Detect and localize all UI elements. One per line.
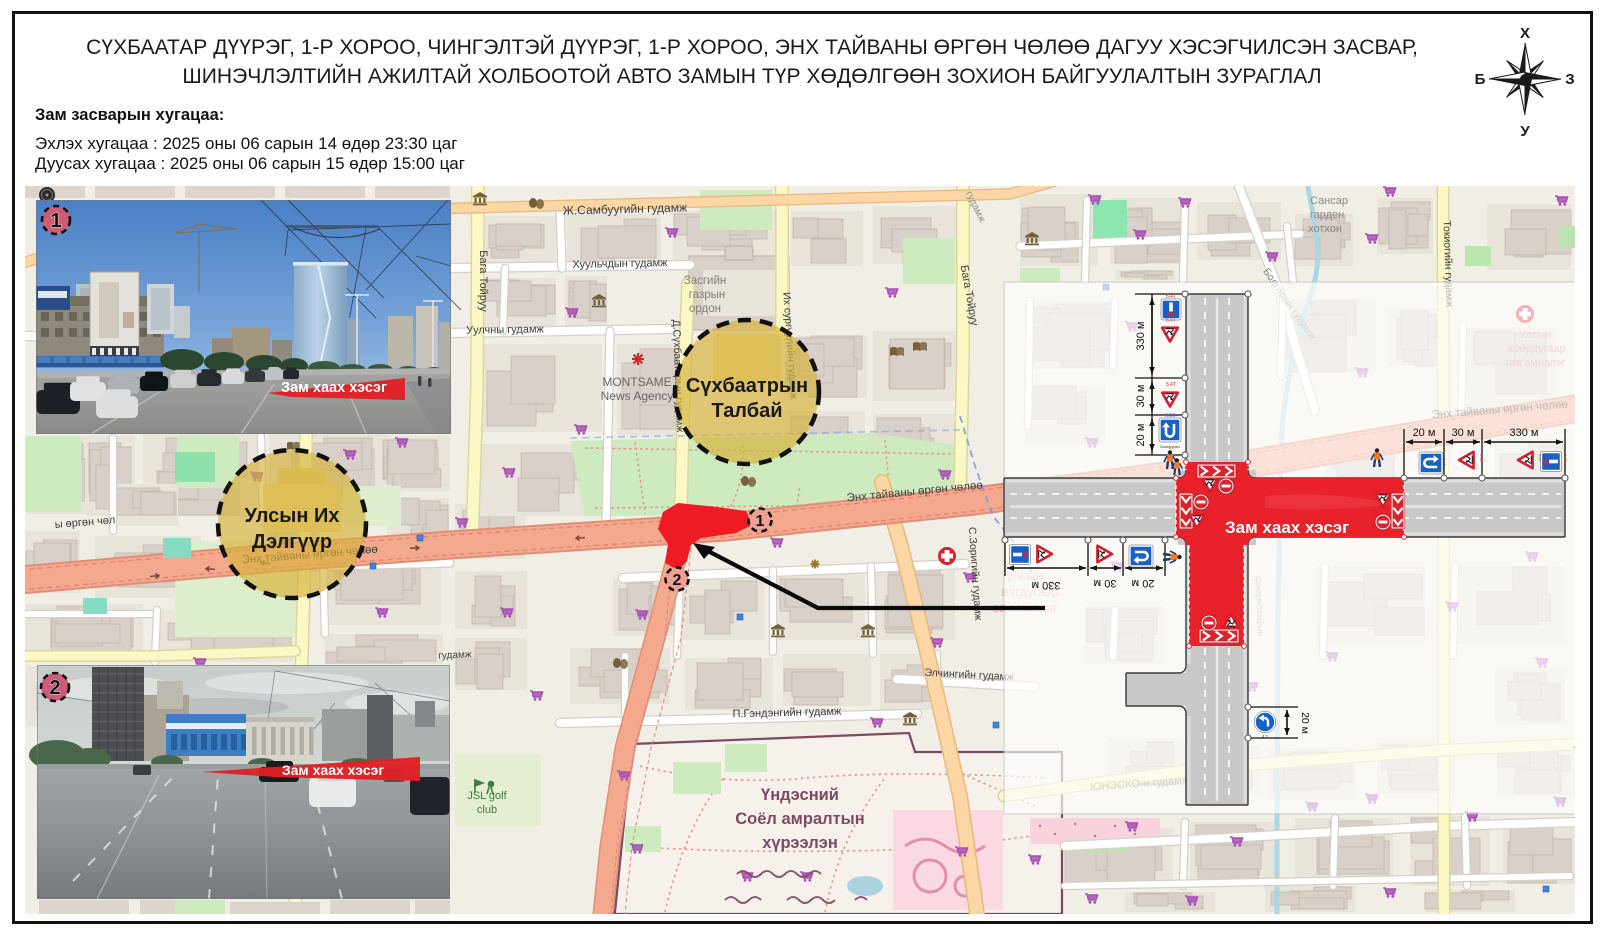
svg-text:гарден: гарден xyxy=(1310,209,1344,221)
svg-text:хотхон: хотхон xyxy=(1308,223,1342,235)
svg-text:20 м: 20 м xyxy=(1132,577,1155,589)
svg-text:Сансар: Сансар xyxy=(1310,195,1348,207)
svg-text:Зам хаах хэсэг: Зам хаах хэсэг xyxy=(282,762,385,778)
svg-text:Үндэсний: Үндэсний xyxy=(761,786,839,804)
svg-text:Соёл амралтын: Соёл амралтын xyxy=(735,810,865,828)
svg-text:газрын: газрын xyxy=(689,289,726,301)
svg-text:30 м: 30 м xyxy=(1135,385,1147,408)
svg-text:20 м: 20 м xyxy=(1135,424,1147,447)
svg-text:ордон: ордон xyxy=(689,303,721,315)
svg-text:Х: Х xyxy=(1520,25,1530,42)
svg-text:330 м: 330 м xyxy=(1032,579,1061,591)
svg-text:2: 2 xyxy=(673,572,682,589)
svg-text:20 м: 20 м xyxy=(1299,712,1311,734)
svg-text:Хуульчдын гудамж: Хуульчдын гудамж xyxy=(572,257,668,271)
svg-text:Улсын Их: Улсын Их xyxy=(245,505,340,527)
svg-text:5.4Т: 5.4Т xyxy=(1479,454,1484,463)
svg-text:Талбай: Талбай xyxy=(711,400,782,422)
svg-text:5.4Т: 5.4Т xyxy=(1166,382,1176,388)
svg-text:З: З xyxy=(1565,71,1574,88)
svg-text:30 м: 30 м xyxy=(1452,427,1475,439)
svg-text:Зам хаах хэсэг: Зам хаах хэсэг xyxy=(1225,518,1349,537)
svg-text:4.1: 4.1 xyxy=(1262,734,1269,739)
svg-text:MONTSAME: MONTSAME xyxy=(602,375,671,389)
svg-text:5.16: 5.16 xyxy=(1442,458,1447,467)
svg-text:330 м: 330 м xyxy=(1135,322,1147,351)
svg-text:Зохицуулагч: Зохицуулагч xyxy=(1160,445,1180,449)
svg-text:Зам хаах хэсэг: Зам хаах хэсэг xyxy=(281,380,387,396)
svg-text:2: 2 xyxy=(49,677,60,699)
svg-text:JSL golf: JSL golf xyxy=(467,790,507,802)
svg-text:5.4Т: 5.4Т xyxy=(1563,454,1568,463)
svg-text:1: 1 xyxy=(756,513,765,530)
svg-text:хүрээлэн: хүрээлэн xyxy=(762,834,838,852)
svg-text:club: club xyxy=(477,804,497,816)
svg-text:1: 1 xyxy=(50,210,61,232)
svg-text:У: У xyxy=(1520,123,1530,140)
svg-text:News Agency: News Agency xyxy=(601,389,674,403)
svg-text:Дэлгүүр: Дэлгүүр xyxy=(252,531,332,553)
svg-text:5.16: 5.16 xyxy=(1165,413,1175,419)
svg-text:Сүхбаатрын: Сүхбаатрын xyxy=(686,375,808,397)
svg-text:30 м: 30 м xyxy=(1094,577,1117,589)
svg-text:Б: Б xyxy=(1475,71,1486,88)
svg-text:Бага Тойруу: Бага Тойруу xyxy=(477,250,489,312)
svg-text:гудамж: гудамж xyxy=(438,649,472,661)
svg-text:5.4Т: 5.4Т xyxy=(1166,318,1176,324)
svg-text:Уулчны гудамж: Уулчны гудамж xyxy=(466,323,545,336)
svg-text:20 м: 20 м xyxy=(1413,427,1436,439)
svg-text:330 м: 330 м xyxy=(1510,427,1539,439)
svg-text:Засгийн: Засгийн xyxy=(684,275,727,287)
